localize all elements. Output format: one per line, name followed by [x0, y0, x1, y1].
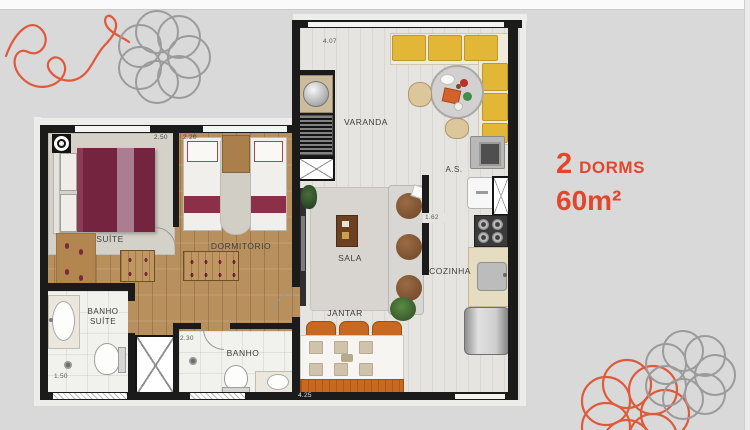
speaker-dot [60, 142, 63, 145]
suite-pillow-1 [60, 153, 77, 191]
table-centerpiece [341, 354, 353, 362]
stove-icon [474, 215, 508, 247]
grill-dome [303, 81, 329, 107]
ceiling-speaker-icon [52, 134, 71, 153]
room-label-jantar: JANTAR [319, 308, 371, 318]
fridge-icon [464, 307, 510, 355]
table-bowl-red [460, 79, 468, 87]
dim-suite: 2.50 [154, 134, 168, 141]
placemat-4 [309, 363, 323, 376]
shaft-xbox [135, 335, 176, 396]
wardrobe-left [120, 250, 155, 282]
wall-right [508, 20, 518, 400]
grill-icon [298, 75, 333, 113]
plant-bottom-icon [390, 297, 416, 321]
banho-suite-shower-icon [64, 361, 72, 369]
wall-left [40, 125, 48, 400]
washer-door [479, 142, 501, 166]
tv-console [336, 215, 358, 247]
room-label-banho: BANHO [217, 348, 269, 358]
table-center-item [456, 84, 461, 89]
dorm-bed-1 [183, 137, 222, 231]
dorm-bed-2 [250, 137, 287, 231]
dorm-bed-1-stripe [184, 196, 221, 213]
table-bowl-green [463, 92, 472, 101]
washer-icon [470, 136, 505, 169]
dim-banho-suite: 1.50 [54, 373, 68, 380]
room-label-area-servico: A.S. [440, 165, 468, 175]
dim-varanda: 4.07 [323, 38, 337, 45]
vent-banho [190, 393, 245, 399]
kitchen-sink-icon [477, 262, 507, 291]
console-item-1 [342, 221, 349, 227]
dim-jantar: 4.25 [298, 392, 312, 399]
wall-banho-suite-right-a [128, 283, 135, 301]
burner-3 [478, 232, 489, 243]
yellow-cushion-3 [464, 35, 498, 61]
round-table [430, 65, 484, 119]
room-label-dormitorio: DORMITÓRIO [198, 241, 284, 251]
placemat-3 [359, 341, 373, 354]
window-suite [75, 126, 150, 132]
wall-mid-lower [292, 317, 300, 397]
table-plate-small [454, 102, 463, 111]
banho-suite-toilet-tank [118, 347, 126, 373]
dorm-bed-1-pillow [187, 141, 218, 162]
suite-bed-runner-stripe [117, 148, 134, 232]
wall-banho-left [173, 323, 179, 392]
banho-shower-icon [189, 357, 197, 365]
wall-sala-cozinha-a [422, 175, 429, 213]
sofa-cushion-2 [396, 234, 422, 260]
burner-1 [478, 219, 489, 230]
dorm-headboard-wood [222, 135, 250, 173]
placemat-2 [334, 341, 348, 354]
window-varanda [308, 22, 504, 27]
room-label-sala: SALA [326, 253, 374, 263]
dorm-bed-2-pillow [254, 141, 283, 162]
washer-varanda-icon [298, 115, 333, 155]
plant-top-icon [301, 185, 317, 209]
dim-dormitorio: 2.20 [183, 134, 197, 141]
yellow-cushion-1 [392, 35, 426, 61]
wall-sala-cozinha-b [422, 223, 429, 275]
suite-bed-headboard [53, 148, 60, 234]
top-strip [0, 0, 750, 10]
kitchen-counter [468, 247, 510, 307]
stool-1 [408, 82, 432, 107]
dorm-bed-2-stripe [251, 196, 286, 213]
tv-icon [301, 216, 305, 271]
dim-banho: 2.30 [180, 335, 194, 342]
placemat-1 [309, 341, 323, 354]
table-plate-white [440, 74, 455, 85]
room-label-suite: SUÍTE [78, 234, 142, 244]
banho-basin [267, 374, 289, 390]
badge-number: 2 [556, 148, 572, 180]
yellow-cushion-4 [482, 63, 508, 91]
kitchen-faucet-icon [503, 273, 507, 277]
burner-4 [492, 232, 503, 243]
badge-area: 60m² [556, 185, 645, 217]
wall-banho-suite-right-b [128, 333, 135, 392]
banho-suite-basin [52, 301, 75, 341]
badge-unit: DORMS [579, 158, 645, 177]
banho-suite-toilet-icon [94, 343, 120, 375]
suite-pillow-2 [60, 194, 77, 232]
unit-badge: 2DORMS 60m² [556, 148, 645, 217]
stool-2 [445, 118, 469, 139]
dining-table [300, 335, 404, 381]
yellow-cushion-2 [428, 35, 462, 61]
dim-sala-cozinha: 1.62 [425, 214, 439, 221]
tank-detail [476, 191, 488, 194]
suite-bed-blanket-fold [77, 148, 83, 232]
floorplan: SUÍTE DORMITÓRIO BANHO SUÍTE 1.50 BANHO … [40, 15, 522, 415]
wall-mid-upper [292, 20, 300, 287]
wall-banho-suite-top [40, 283, 135, 291]
suite-bed-blanket [77, 148, 155, 232]
placemat-6 [359, 363, 373, 376]
window-dormitorio [203, 126, 287, 132]
wall-banho-top-b [230, 323, 300, 329]
console-item-2 [342, 232, 349, 239]
banho-suite-faucet-icon [49, 318, 53, 322]
yellow-cushion-5 [482, 93, 508, 121]
suite-bed [53, 148, 155, 232]
wardrobe-right [183, 251, 239, 281]
right-edge-strip [744, 0, 750, 430]
wall-suite-dorm [173, 133, 179, 227]
gray-flower-squiggle-bottom-right [646, 331, 735, 419]
marketing-page: { "badge": { "number": "2", "unit": "DOR… [0, 0, 750, 430]
placemat-5 [334, 363, 348, 376]
orange-flower-squiggle-bottom-right [582, 360, 689, 430]
room-label-varanda: VARANDA [334, 117, 398, 127]
varanda-cabinet-xbox [298, 157, 335, 181]
room-label-banho-suite: BANHO SUÍTE [76, 307, 130, 327]
burner-2 [492, 219, 503, 230]
window-cozinha [455, 394, 505, 399]
vent-banho-suite [53, 393, 127, 399]
